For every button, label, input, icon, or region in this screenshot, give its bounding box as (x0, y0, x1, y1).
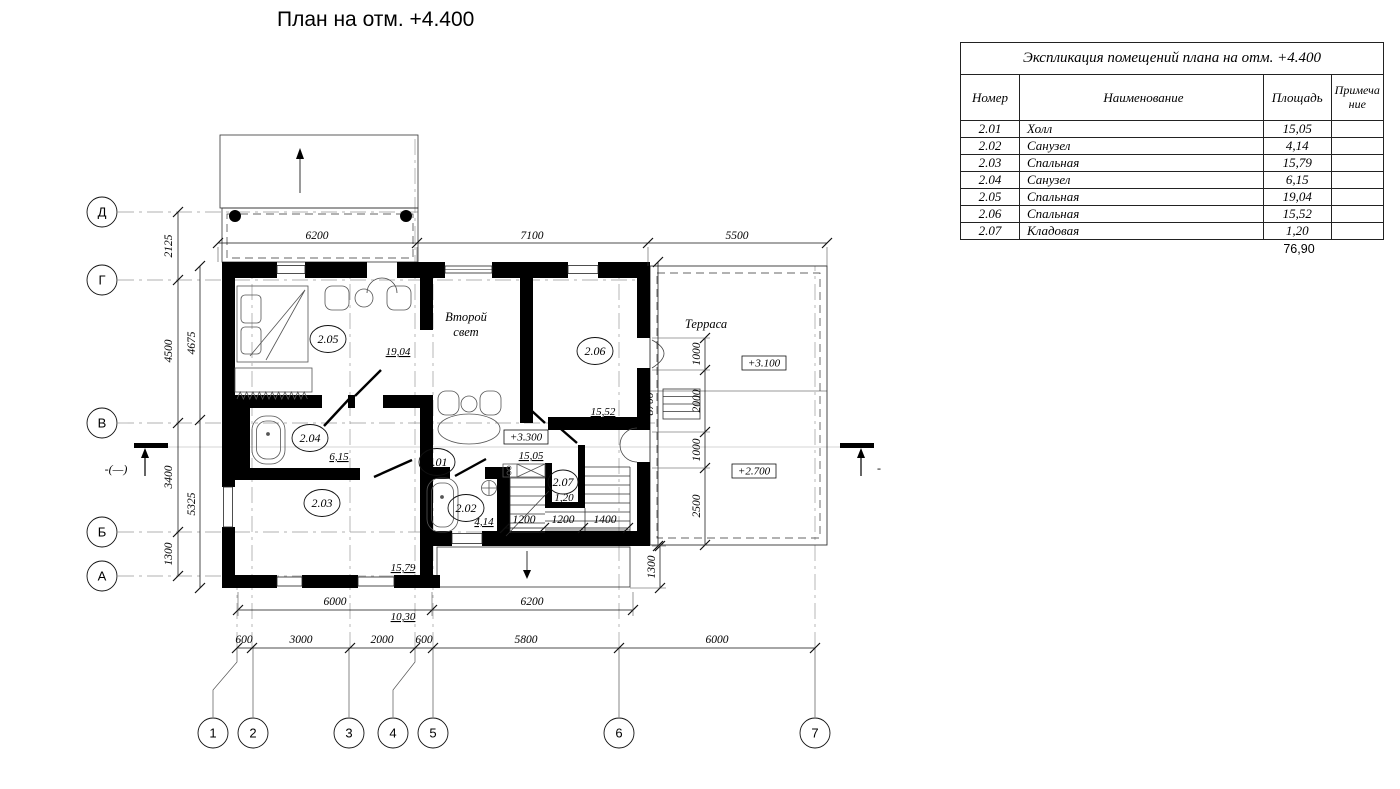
table-row: 2.06 Спальная 15,52 (961, 206, 1384, 223)
dim-label: 1400 (594, 514, 617, 526)
table-total-area: 76,90 (1268, 242, 1330, 256)
dim-label: 3000 (289, 634, 313, 646)
door-swing-arc (620, 428, 637, 445)
level-terrace-lower: +2.700 (738, 466, 771, 478)
dim-label: 5500 (726, 230, 749, 242)
window (277, 266, 305, 274)
dim-label: 6000 (324, 596, 347, 608)
level-hall: +3.300 (510, 432, 543, 444)
room-area: 1,20 (554, 492, 574, 504)
section-label-left: -(—) (105, 462, 128, 476)
drawing-sheet: План на отм. +4.400 -(—) - (0, 0, 1400, 789)
window (452, 534, 482, 544)
porch (437, 547, 630, 587)
axis-leaders (213, 648, 815, 717)
wardrobe (235, 368, 312, 399)
explication-table: Экспликация помещений плана на отм. +4.4… (960, 42, 1384, 240)
dim-label: 5800 (515, 634, 538, 646)
svg-text:2.01: 2.01 (427, 455, 448, 469)
table-row: 2.05 Спальная 19,04 (961, 189, 1384, 206)
dim-label: 2000 (371, 634, 394, 646)
svg-text:2.03: 2.03 (312, 496, 333, 510)
column-header-note: Примечание (1331, 75, 1383, 121)
axis-label-d: Д (98, 205, 107, 220)
svg-text:2.05: 2.05 (318, 332, 339, 346)
table-row: 2.02 Санузел 4,14 (961, 138, 1384, 155)
dim-label: 8700 (644, 392, 656, 415)
window (568, 266, 598, 274)
svg-text:2.07: 2.07 (553, 475, 575, 489)
svg-text:свет: свет (453, 325, 478, 339)
dim-label: 1200 (552, 514, 575, 526)
dim-label: 4675 (186, 331, 198, 354)
room-label-2.07: 2.07 1,20 (548, 470, 578, 504)
sitting-area (325, 286, 411, 310)
door-leaf (355, 370, 381, 396)
washing-machine-icon (482, 481, 497, 496)
room-area: 19,04 (386, 346, 411, 358)
lounge-group (438, 391, 501, 444)
room-label-2.04: 2.04 6,15 (292, 425, 349, 464)
window (277, 577, 302, 586)
axis-label-3: 3 (345, 726, 352, 741)
level-terrace-upper: +3.100 (748, 358, 781, 370)
axis-label-g: Г (98, 273, 105, 288)
dim-label: 7100 (521, 230, 544, 242)
column-dot (400, 210, 412, 222)
table-row: 2.04 Санузел 6,15 (961, 172, 1384, 189)
room-area: 15,52 (591, 406, 616, 418)
axis-label-6: 6 (615, 726, 622, 741)
roof-outline (220, 135, 418, 208)
axis-label-2: 2 (249, 726, 256, 741)
room-label-2.02: 2.02 4,14 (448, 495, 494, 529)
room-area: 15,05 (519, 450, 544, 462)
room-label-2.05: 2.05 19,04 (310, 326, 411, 359)
door-leaf (455, 459, 486, 476)
column-dot (229, 210, 241, 222)
section-mark-left (134, 443, 168, 448)
room-label-2.06: 2.06 15,52 (577, 338, 616, 419)
terrace-label: Терраса (685, 317, 727, 331)
dim-label: 600 (415, 634, 433, 646)
room-area: 4,14 (474, 516, 494, 528)
dim-label: 1300 (646, 555, 658, 578)
dim-label: 6000 (706, 634, 729, 646)
table-row: 2.07 Кладовая 1,20 (961, 223, 1384, 240)
svg-text:2.06: 2.06 (585, 344, 606, 358)
room-area: 6,15 (329, 451, 349, 463)
axis-label-v: В (98, 416, 107, 431)
axis-label-4: 4 (389, 726, 396, 741)
dim-label: 5325 (186, 492, 198, 515)
column-header-area: Площадь (1263, 75, 1331, 121)
dim-label: 1000 (691, 342, 703, 365)
table-row: 2.03 Спальная 15,79 (961, 155, 1384, 172)
door-swing-arc (620, 445, 637, 462)
section-mark-right (840, 443, 874, 448)
up-arrow-icon (296, 148, 304, 159)
dim-label: 600 (235, 634, 253, 646)
axis-label-1: 1 (209, 726, 216, 741)
second-light-label: Второй (445, 310, 488, 324)
dim-label: 2000 (691, 389, 703, 412)
dim-label: 2125 (163, 234, 175, 257)
down-arrow-icon (523, 570, 531, 579)
terrace (650, 266, 827, 545)
dim-label: 6200 (306, 230, 329, 242)
svg-text:2.04: 2.04 (300, 431, 321, 445)
walls (222, 262, 650, 588)
window (224, 487, 233, 527)
axis-label-a: А (98, 569, 107, 584)
svg-text:2.02: 2.02 (456, 501, 477, 515)
dim-label: 1000 (691, 438, 703, 461)
door-leaf (324, 398, 350, 426)
column-header-num: Номер (961, 75, 1020, 121)
table-title: Экспликация помещений плана на отм. +4.4… (961, 43, 1384, 75)
room-area: 15,79 (391, 562, 416, 574)
dim-label: 2500 (691, 494, 703, 517)
dim-label: 6200 (521, 596, 544, 608)
dim-label: 1300 (163, 542, 175, 565)
section-label-right: - (877, 461, 881, 475)
dim-label: 4500 (163, 339, 175, 362)
dim-label: 1200 (513, 514, 536, 526)
window (358, 577, 394, 586)
axis-label-5: 5 (429, 726, 436, 741)
table-row: 2.01 Холл 15,05 (961, 121, 1384, 138)
door-leaf (374, 460, 412, 477)
dim-label: 3400 (163, 465, 175, 489)
column-header-name: Наименование (1019, 75, 1263, 121)
bed (237, 286, 308, 362)
axis-label-b: Б (98, 525, 107, 540)
axis-label-7: 7 (811, 726, 818, 741)
stair-area-label: 10,30 (391, 611, 416, 623)
